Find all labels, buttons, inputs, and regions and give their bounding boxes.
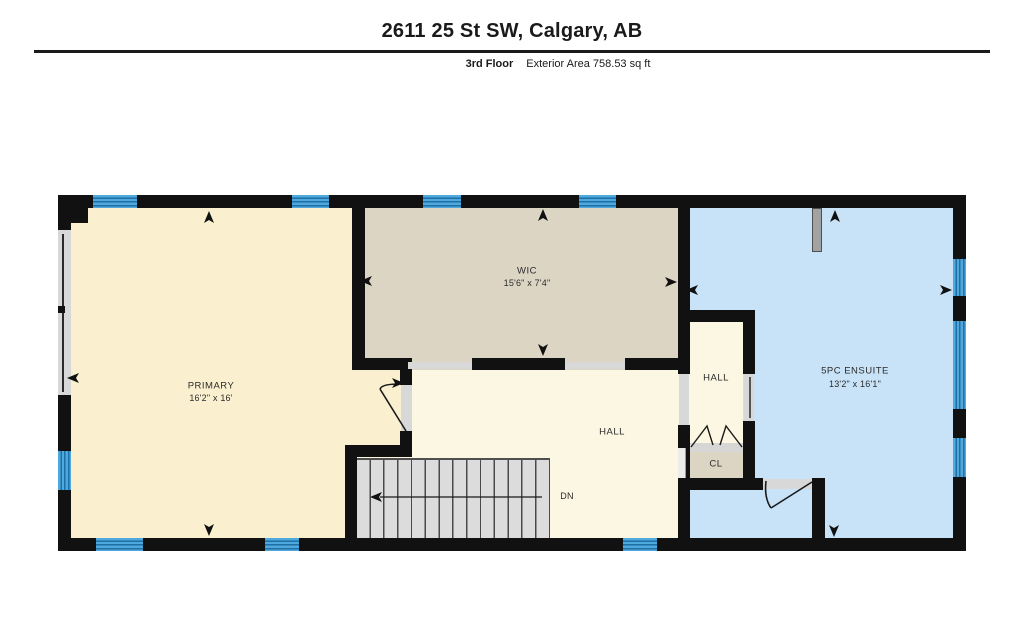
wall-segment bbox=[812, 478, 825, 538]
recess-glass-line bbox=[62, 234, 64, 392]
closet-threshold bbox=[690, 443, 743, 452]
wic-opening-left bbox=[408, 362, 472, 369]
wall-segment bbox=[678, 322, 690, 374]
pocket-door-leaf bbox=[749, 377, 751, 418]
wic-floor bbox=[352, 208, 680, 370]
closet-label: CL bbox=[709, 459, 722, 470]
wic-dims: 15'6" x 7'4" bbox=[504, 278, 551, 288]
wall-segment bbox=[743, 322, 755, 374]
window bbox=[423, 195, 461, 208]
hall-passage-opening bbox=[679, 374, 689, 425]
wall-segment bbox=[678, 478, 763, 490]
ensuite-dims: 13'2" x 16'1" bbox=[829, 379, 881, 389]
window bbox=[953, 438, 966, 477]
floorplan-page: 2611 25 St SW, Calgary, AB 3rd Floor Ext… bbox=[0, 0, 1024, 630]
stairs-dn-label: DN bbox=[560, 491, 573, 501]
window bbox=[953, 259, 966, 296]
primary-dims: 16'2" x 16' bbox=[189, 393, 232, 403]
window bbox=[58, 451, 71, 490]
wall-segment bbox=[678, 310, 755, 322]
wall-segment bbox=[58, 195, 88, 223]
recess-mullion bbox=[58, 306, 65, 313]
primary-floor bbox=[71, 208, 352, 538]
primary-nook-floor bbox=[352, 370, 402, 445]
wall-segment bbox=[472, 358, 565, 370]
wall-segment bbox=[345, 445, 357, 538]
ensuite-label: 5PC ENSUITE bbox=[821, 366, 889, 377]
floor-plan: PRIMARY 16'2" x 16' WIC 15'6" x 7'4" HAL… bbox=[0, 0, 1024, 630]
wall-segment bbox=[678, 208, 690, 322]
window bbox=[623, 538, 657, 551]
window bbox=[265, 538, 299, 551]
hall-main-label: HALL bbox=[599, 427, 625, 438]
staircase bbox=[357, 458, 550, 538]
window bbox=[93, 195, 137, 208]
primary-label: PRIMARY bbox=[188, 381, 235, 392]
hall-small-label: HALL bbox=[703, 373, 729, 384]
window bbox=[953, 321, 966, 409]
wic-label: WIC bbox=[517, 266, 537, 277]
wic-opening-right bbox=[565, 362, 625, 369]
wall-segment bbox=[352, 208, 365, 370]
shower-partition bbox=[812, 208, 822, 252]
primary-door-opening bbox=[401, 385, 412, 431]
window bbox=[292, 195, 329, 208]
wall-niche bbox=[678, 448, 686, 478]
window bbox=[96, 538, 143, 551]
wc-door-opening bbox=[763, 479, 812, 489]
window bbox=[579, 195, 616, 208]
hall-small-floor bbox=[690, 322, 743, 450]
